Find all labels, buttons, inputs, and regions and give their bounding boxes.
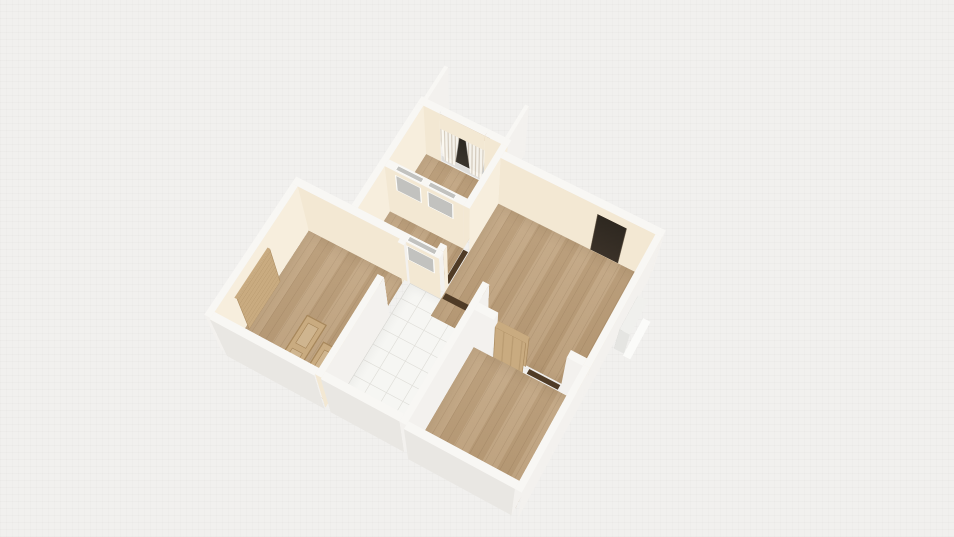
- floor-plan-scene: [0, 0, 954, 537]
- bathroom-south-wall[interactable]: [331, 405, 409, 452]
- render-canvas[interactable]: [0, 0, 954, 537]
